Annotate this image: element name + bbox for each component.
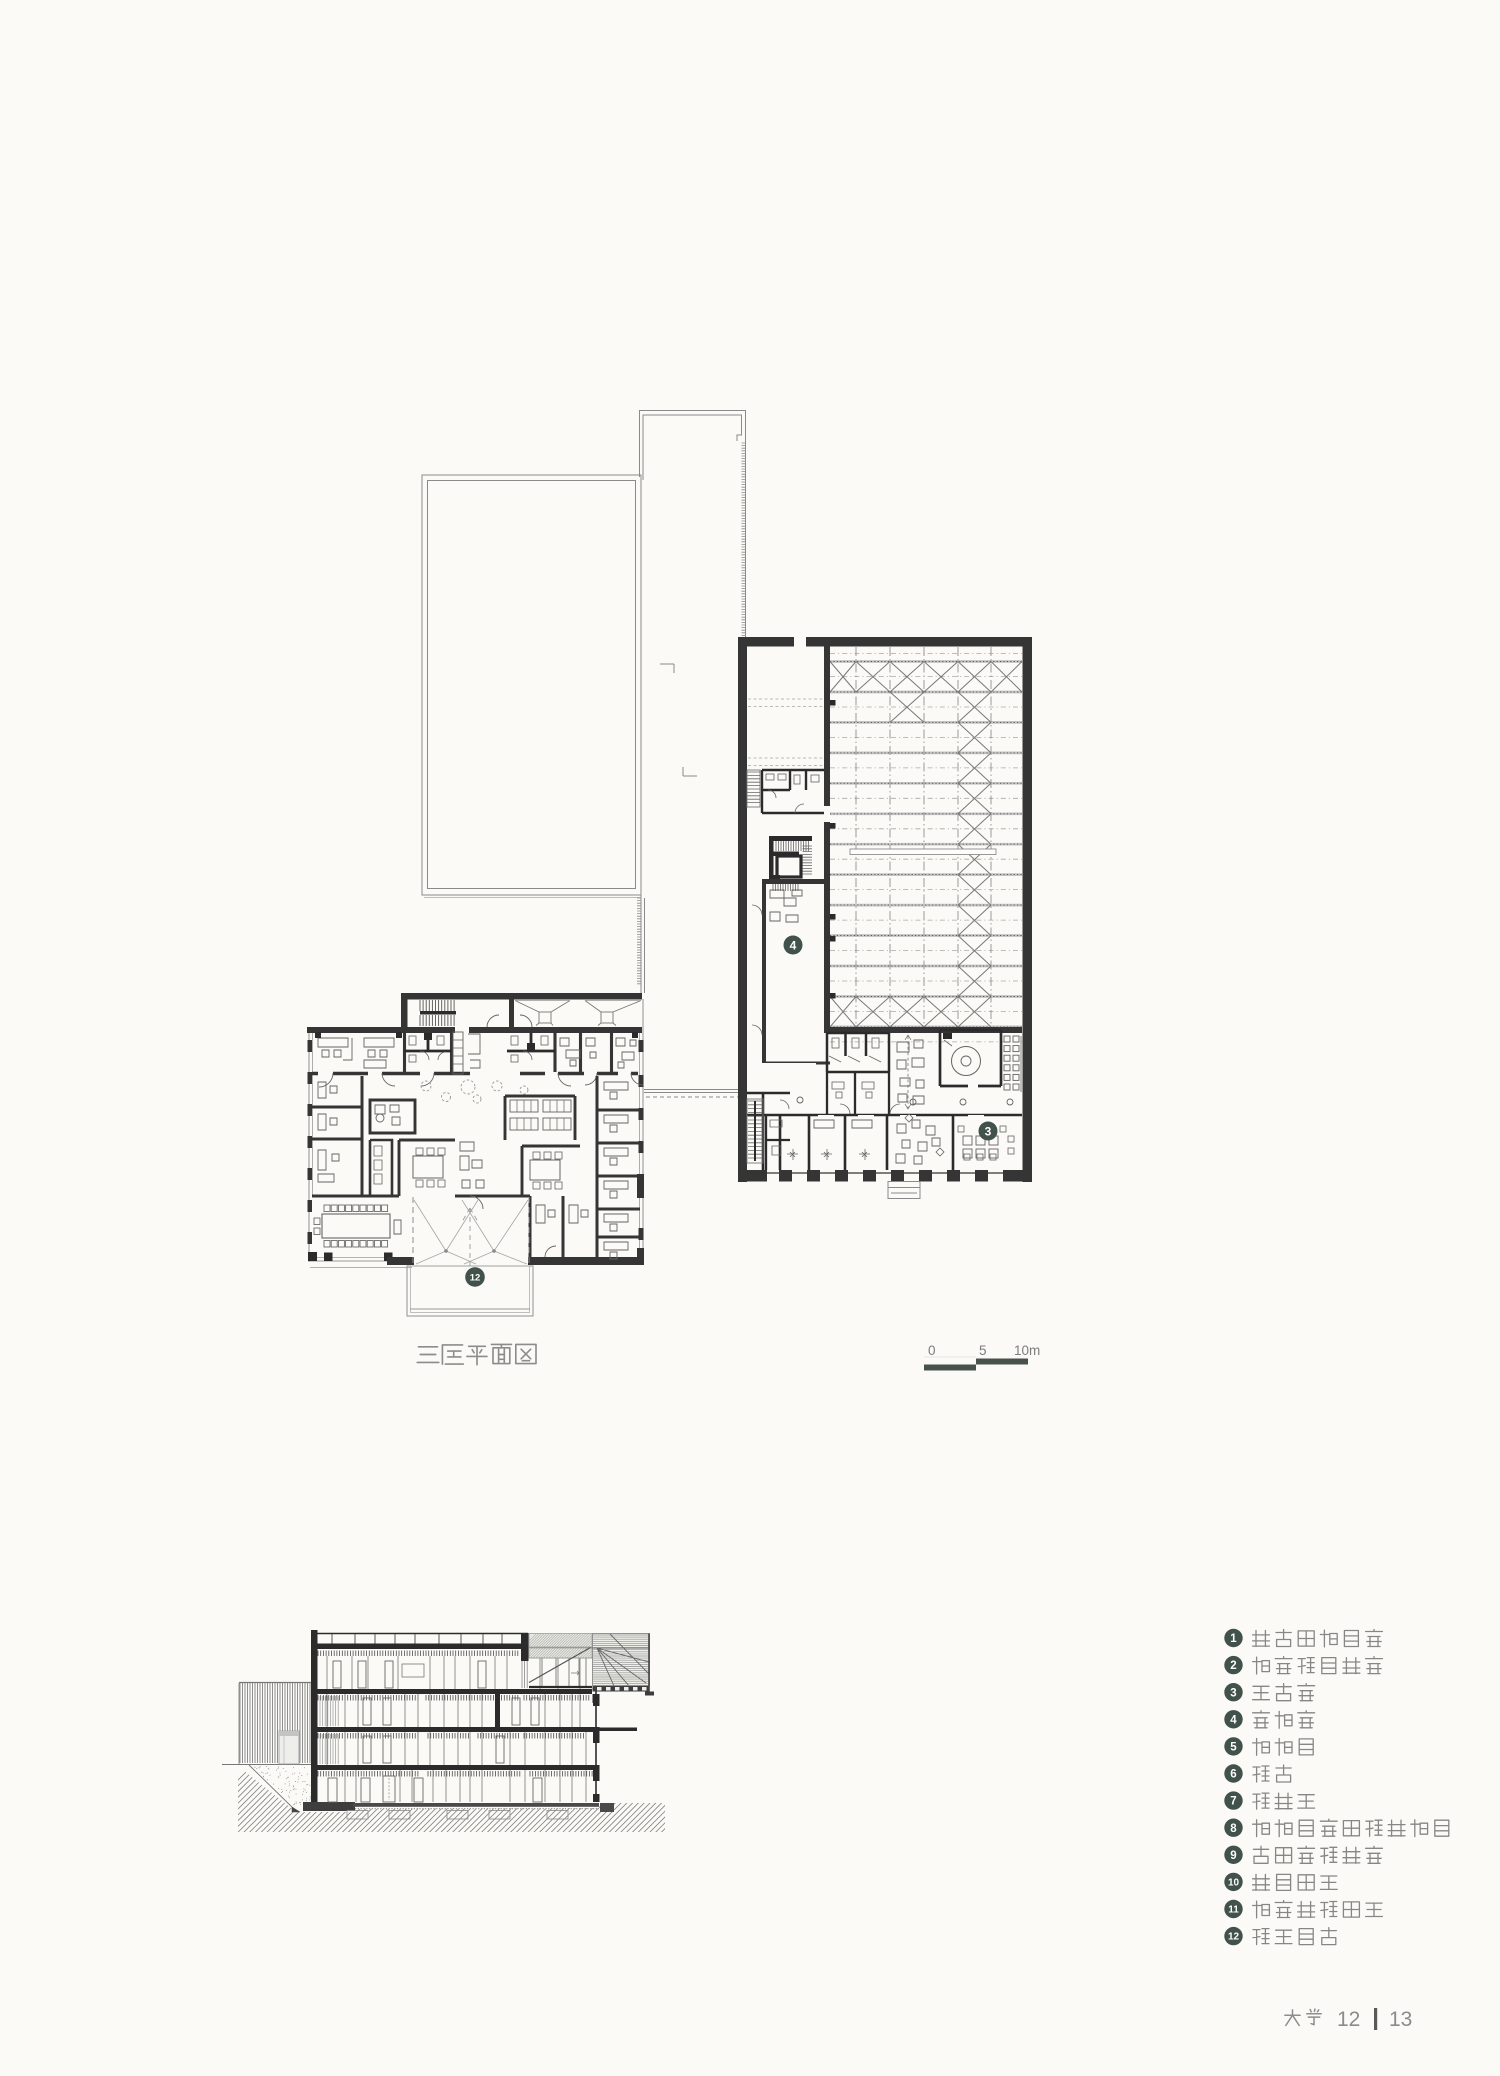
svg-text:11: 11 (1228, 1905, 1239, 1916)
svg-text:12: 12 (1337, 2008, 1360, 2031)
svg-text:0: 0 (928, 1343, 936, 1358)
svg-text:12: 12 (1228, 1932, 1240, 1943)
svg-text:4: 4 (790, 938, 797, 952)
svg-text:5: 5 (979, 1343, 987, 1358)
svg-text:2: 2 (1230, 1660, 1236, 1672)
svg-text:10m: 10m (1014, 1343, 1040, 1358)
svg-text:1: 1 (1230, 1633, 1237, 1645)
svg-text:5: 5 (1230, 1742, 1237, 1754)
svg-text:4: 4 (1230, 1714, 1237, 1726)
svg-text:10: 10 (1228, 1878, 1240, 1889)
svg-text:3: 3 (1230, 1687, 1236, 1699)
svg-text:9: 9 (1230, 1850, 1236, 1862)
svg-text:7: 7 (1230, 1796, 1236, 1808)
svg-text:3: 3 (985, 1124, 992, 1138)
svg-text:6: 6 (1230, 1769, 1236, 1781)
svg-text:8: 8 (1230, 1823, 1237, 1835)
svg-text:12: 12 (470, 1272, 481, 1283)
svg-text:13: 13 (1389, 2008, 1412, 2031)
